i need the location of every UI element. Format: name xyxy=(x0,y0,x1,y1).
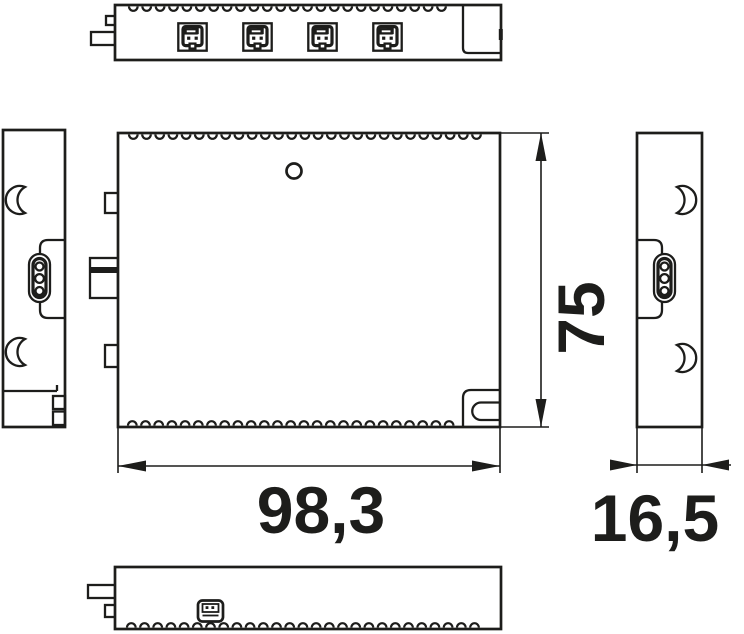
side-connector xyxy=(90,258,118,298)
right-side-view xyxy=(637,133,702,427)
technical-drawing-page: 98,3 75 16,5 xyxy=(0,0,744,634)
top-view xyxy=(91,5,503,60)
side-connector-band xyxy=(90,267,118,273)
connector-port-2-icon xyxy=(243,23,271,50)
bottom-view-large-tab xyxy=(88,585,117,598)
width-dimension-label: 98,3 xyxy=(257,473,385,547)
height-dimension-label: 75 xyxy=(544,281,618,354)
pin-connector-icon xyxy=(654,254,675,302)
front-view xyxy=(90,133,500,427)
connector-port-1-icon xyxy=(178,23,206,50)
bottom-view xyxy=(88,567,501,629)
arrow-right-icon xyxy=(472,461,500,472)
technical-drawing: 98,3 75 16,5 xyxy=(0,0,744,634)
top-view-edge-connector-icon xyxy=(499,29,503,40)
connector-port-3-icon xyxy=(308,23,336,50)
top-view-large-tab xyxy=(91,32,115,45)
depth-extension-lines xyxy=(637,428,702,473)
front-view-outline xyxy=(118,133,500,427)
depth-dimension-label: 16,5 xyxy=(591,481,719,555)
arrow-down-icon xyxy=(536,399,547,427)
pin-connector-icon xyxy=(29,254,50,302)
arrow-left-icon xyxy=(702,460,729,471)
service-port-icon xyxy=(198,601,223,622)
arrow-right-icon xyxy=(610,460,637,471)
height-dimension: 75 xyxy=(500,133,618,427)
connector-port-4-icon xyxy=(373,23,401,50)
left-side-view xyxy=(3,130,65,427)
arrow-up-icon xyxy=(536,133,547,161)
depth-dimension: 16,5 xyxy=(591,428,731,555)
bottom-view-outline xyxy=(115,567,501,629)
width-dimension: 98,3 xyxy=(118,428,500,547)
arrow-left-icon xyxy=(118,461,146,472)
